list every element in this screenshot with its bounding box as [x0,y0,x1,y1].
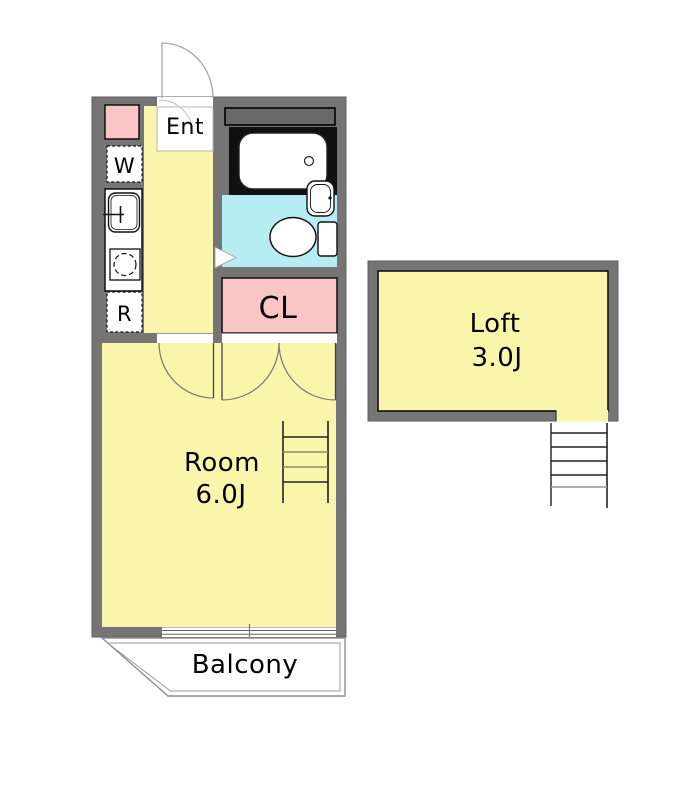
washer-label: W [114,154,135,178]
kitchen-sink [109,193,140,232]
floor-plan: Ent W R CL Room 6.0J Loft 3.0J Balcony [0,0,681,800]
floor-plan-canvas: Ent W R CL Room 6.0J Loft 3.0J Balcony [0,0,681,800]
doorway-band [157,333,337,344]
loft-label: Loft [470,309,521,339]
toilet-bowl [270,218,316,257]
bathtub-drain [305,157,314,166]
entrance-label: Ent [166,115,204,140]
bath-duct [225,108,335,125]
entrance-door-arc [162,43,213,98]
closet-label: CL [259,291,298,326]
loft-floor [378,271,608,411]
loft-opening [556,410,608,422]
room-label: Room [184,448,260,478]
toilet-tank [318,222,337,256]
shoe-cabinet [105,105,139,139]
doorway-pillar [213,333,222,344]
loft-ladder [551,423,607,508]
wash-basin-faucet [328,196,331,199]
loft-size-label: 3.0J [471,343,522,373]
room-size-label: 6.0J [195,480,246,510]
balcony-label: Balcony [192,650,299,680]
fridge-label: R [117,302,132,326]
entrance-opening [157,97,213,108]
